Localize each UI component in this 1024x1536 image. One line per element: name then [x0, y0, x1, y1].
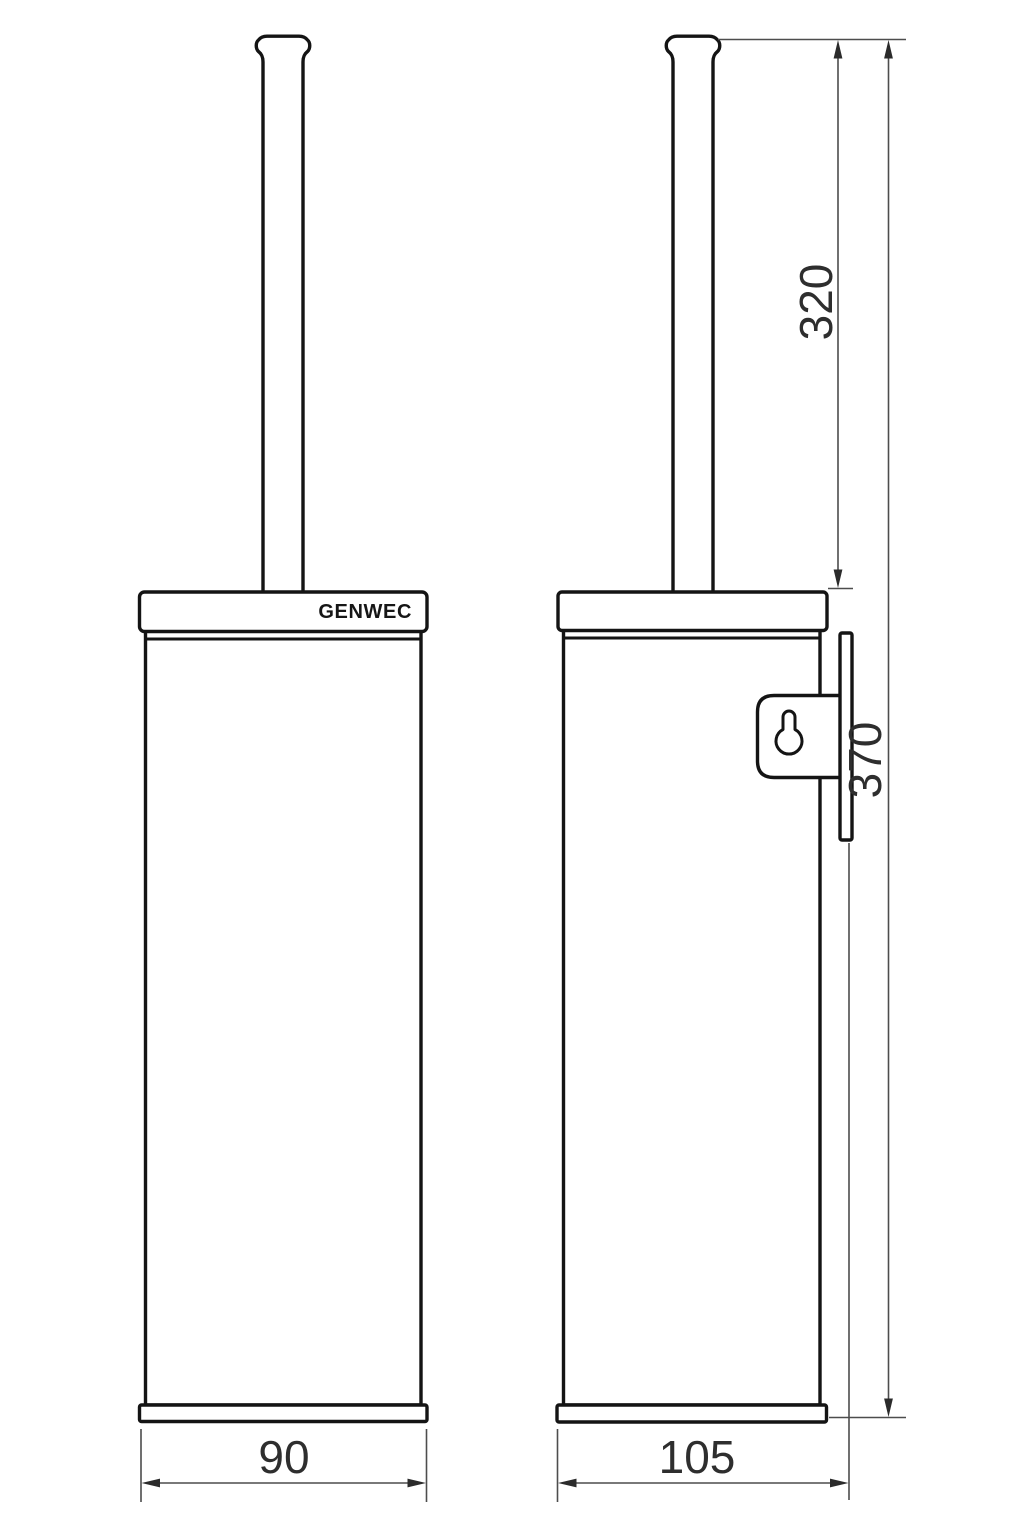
front-body: [146, 631, 422, 1405]
front-view: GENWEC: [140, 36, 428, 1421]
wall-bracket: [758, 696, 842, 778]
arrow-up-icon: [884, 40, 893, 59]
side-lid: [558, 592, 827, 631]
arrow-right-icon: [830, 1479, 849, 1488]
side-view: [557, 36, 852, 1422]
technical-drawing-page: GENWEC: [0, 0, 1024, 1536]
dimension-handle-height: 320: [790, 40, 853, 589]
front-brush-handle: [256, 36, 310, 592]
arrow-left-icon: [142, 1479, 161, 1488]
dimension-label-side-depth: 105: [659, 1431, 736, 1483]
arrow-left-icon: [558, 1479, 577, 1488]
dimension-label-total-height: 370: [839, 722, 891, 799]
arrow-down-icon: [834, 570, 843, 589]
arrow-down-icon: [884, 1399, 893, 1418]
brand-label: GENWEC: [318, 601, 412, 623]
arrow-right-icon: [408, 1479, 427, 1488]
dimension-drawing: GENWEC: [0, 0, 1024, 1536]
side-base-plate: [557, 1405, 827, 1422]
dimension-label-front-width: 90: [258, 1431, 309, 1483]
arrow-up-icon: [834, 40, 843, 59]
dimension-label-handle-height: 320: [790, 264, 842, 341]
front-base-plate: [140, 1405, 428, 1422]
dimension-front-width: 90: [141, 1429, 427, 1502]
dimension-total-height: 370: [829, 40, 906, 1418]
side-brush-handle: [666, 36, 720, 592]
